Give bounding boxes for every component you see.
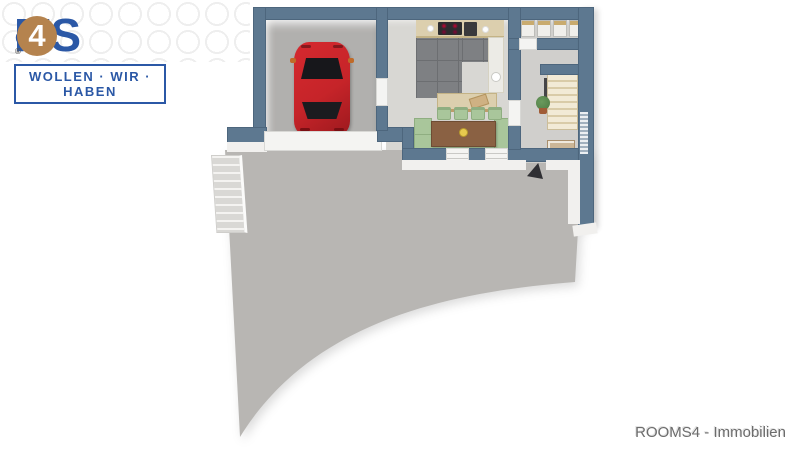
interior-stairs [547, 74, 578, 130]
red-car [294, 42, 350, 136]
garage-door-opening [376, 78, 388, 106]
page-canvas: R o o MS 4 ® WOLLEN · WIR · HABEN ROOMS4… [0, 0, 800, 450]
logo-tagline: WOLLEN · WIR · HABEN [14, 64, 166, 104]
rooms4-logo: R o o MS 4 ® WOLLEN · WIR · HABEN [14, 12, 174, 98]
garage-door-sill [264, 131, 382, 151]
dishes [428, 26, 433, 31]
dining-chair [471, 107, 485, 120]
wall-fascia [227, 142, 267, 152]
wall-stair-nook [540, 64, 580, 75]
wall-mid-vertical [508, 7, 521, 150]
dining-chair [437, 107, 451, 120]
hall-door-opening [508, 100, 521, 126]
kitchen-sink [491, 72, 501, 82]
fruit-bowl [459, 128, 468, 137]
kitchen-tall-cabinet [488, 37, 504, 93]
wall-watermark [580, 112, 588, 154]
utility-door-opening [519, 38, 537, 50]
car-windshield [301, 58, 343, 79]
plant-pot [539, 108, 547, 114]
entrance-door-opening [526, 148, 546, 162]
logo-wordmark: R o o MS 4 ® [14, 12, 174, 60]
wall-face-south-left [402, 160, 526, 170]
car-body [294, 42, 350, 136]
utility-appliance [553, 20, 567, 37]
wall-top [253, 7, 594, 20]
car-headlight [301, 45, 311, 48]
wall-garage-stub-left [227, 127, 267, 143]
wall-face-right-inner [568, 160, 580, 224]
wall-left [253, 7, 266, 144]
wall-garage-right [376, 7, 388, 131]
dishes [483, 27, 488, 32]
car-rear-window [302, 102, 342, 119]
utility-appliance [537, 20, 551, 37]
cooktop [438, 22, 462, 35]
car-headlight [333, 45, 343, 48]
registered-mark-icon: ® [15, 47, 21, 56]
oven [464, 22, 477, 36]
exterior-stairs [211, 155, 247, 233]
car-side-mirror [348, 58, 354, 63]
dining-chair [454, 107, 468, 120]
utility-appliance [521, 20, 535, 37]
logo-badge-4: 4 [17, 16, 57, 56]
car-side-mirror [290, 58, 296, 63]
footer-credit: ROOMS4 - Immobilien [635, 424, 786, 441]
dining-chair [488, 107, 502, 120]
